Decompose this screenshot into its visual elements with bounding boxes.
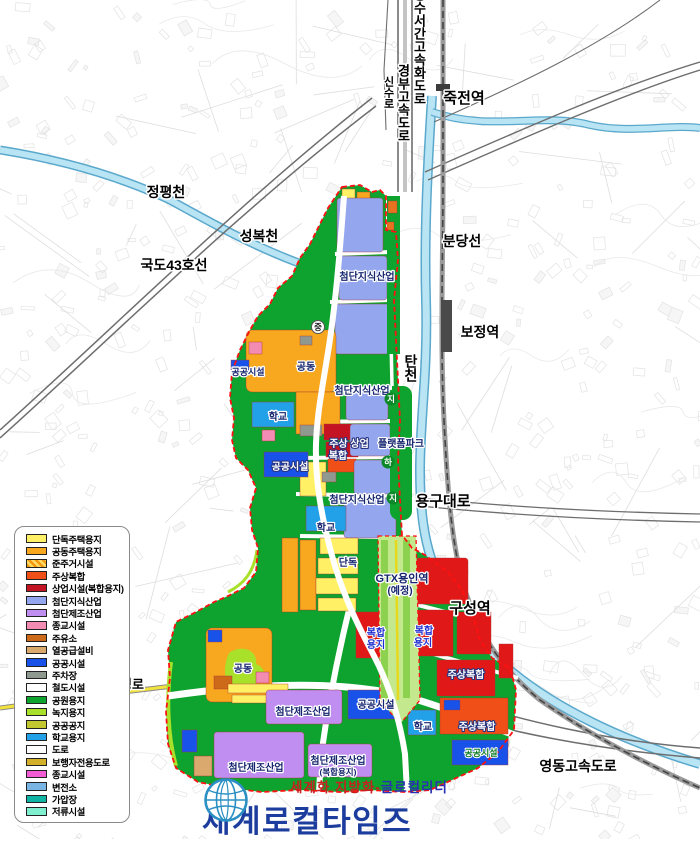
chip-public2: [182, 730, 197, 752]
legend-swatch: [26, 733, 47, 742]
legend-swatch: [26, 634, 47, 643]
road-label-suseo: 용수서간고속화도로: [412, 0, 427, 105]
parcel-apartment3: [282, 538, 298, 612]
parcel-apartment4: [300, 540, 316, 610]
legend-swatch: [26, 646, 47, 655]
circle-label-ji1: 지: [387, 394, 395, 404]
platform-city-map: 용수서간고속화도로 경부고속도로 신수로 탄천 죽전역 정평천 성복천 국도43…: [0, 0, 700, 839]
corridor-strip2: [403, 540, 410, 698]
tagline-red-part: 세계화 지방화-: [290, 780, 381, 795]
legend-row: 첨단제조산업: [26, 607, 125, 618]
chip-parking1: [300, 336, 312, 345]
legend-row: 학교용지: [26, 732, 125, 743]
zone-label-public2: 공공시설: [272, 460, 309, 473]
legend-swatch: [26, 609, 47, 618]
circle-label-ha: 하: [384, 457, 392, 467]
legend-swatch: [26, 782, 47, 791]
chip-public3: [444, 700, 460, 710]
legend-swatch: [26, 584, 47, 593]
circle-label-jung: 중: [314, 322, 322, 332]
zone-label-jejo1: 첨단제조산업: [275, 705, 330, 718]
parcel-knowledge3: [335, 304, 389, 354]
chip-public: [208, 630, 222, 642]
zone-label-public4: 공공시설: [464, 747, 497, 758]
road-label-yonggu: 용구대로: [415, 493, 470, 510]
legend-row: 도로: [26, 744, 125, 755]
legend-swatch: [26, 770, 47, 779]
sinsu-road: [384, 0, 388, 130]
legend-swatch: [26, 807, 47, 816]
zone-label-gongdong1: 공동: [297, 361, 315, 373]
zone-label-jisik3: 첨단지식산업: [329, 493, 384, 506]
legend-swatch: [26, 671, 47, 680]
zone-label-school3: 학교: [414, 720, 432, 733]
legend-swatch: [26, 683, 47, 692]
chip-heat-supply: [194, 756, 212, 776]
legend-row: 종교시설: [26, 620, 125, 631]
legend-row: 주유소: [26, 632, 125, 643]
zone-label-public1: 공공시설: [231, 366, 264, 377]
legend-swatch: [26, 571, 47, 580]
legend-row: 종교시설: [26, 769, 125, 780]
zone-label-jisik2: 첨단지식산업: [334, 384, 389, 397]
road-label-gukdo43: 국도43호선: [140, 257, 207, 273]
legend-row: 첨단지식산업: [26, 595, 125, 606]
logo-tagline: 세계화 지방화-글로컬리더: [290, 776, 448, 796]
river-label-tancheon: 탄천: [403, 353, 419, 383]
zone-label-school2: 학교: [317, 521, 335, 534]
zone-label-public3: 공공시설: [358, 698, 395, 711]
bojeong-station-mark: [441, 300, 452, 352]
legend-swatch: [26, 795, 47, 804]
legend-swatch: [26, 534, 47, 543]
chip-religion2: [262, 430, 275, 441]
legend-row: 상업시설(복합용지): [26, 583, 125, 594]
legend-swatch: [26, 745, 47, 754]
legend-row: 보행자전용도로: [26, 756, 125, 767]
station-label-guseong: 구성역: [449, 599, 490, 617]
globe-icon: [202, 776, 250, 824]
legend-swatch: [26, 708, 47, 717]
station-label-bojeong: 보정역: [461, 324, 500, 340]
chip-religion1: [249, 342, 262, 354]
zone-label-school1: 학교: [269, 410, 287, 423]
zone-label-gongdong2: 공동: [234, 663, 252, 675]
legend-row: 열공급설비: [26, 645, 125, 656]
road-label-gyeongbu: 경부고속도로: [396, 63, 411, 142]
legend-swatch: [26, 758, 47, 767]
chip-parking3: [322, 472, 336, 482]
chip-orange2: [387, 222, 394, 230]
zone-label-bokhap-b1: 복합: [415, 624, 434, 637]
legend: 단독주택용지 공동주택용지 준주거시설 주상복합 상업시설(복합용지) 첨단지식…: [14, 526, 130, 823]
river-label-seongbok: 성복천: [240, 228, 279, 244]
legend-row: 저류시설: [26, 806, 125, 817]
legend-swatch: [26, 559, 47, 568]
legend-row: 가압장: [26, 794, 125, 805]
zone-label-jisik1: 첨단지식산업: [339, 270, 394, 283]
legend-swatch: [26, 658, 47, 667]
legend-row: 공원용지: [26, 694, 125, 705]
road-label-yeongdong: 영동고속도로: [539, 758, 616, 774]
zone-label-jejo2: 첨단제조산업: [228, 761, 283, 774]
legend-row: 공동주택용지: [26, 545, 125, 556]
legend-swatch: [26, 696, 47, 705]
zone-label-bokhap-a2: 용지: [367, 638, 385, 651]
zone-label-gtx: GTX용인역: [376, 571, 429, 585]
legend-row: 공공공지: [26, 719, 125, 730]
zone-label-jusang2: 주상복합: [459, 720, 497, 733]
road-label-sinsu: 신수로: [382, 75, 394, 109]
chip-religion3: [256, 672, 269, 683]
zone-label-jusang1: 주상복합: [448, 668, 486, 681]
legend-swatch: [26, 547, 47, 556]
zone-label-dandok: 단독: [339, 556, 357, 569]
circle-label-ji2: 지: [389, 493, 397, 503]
rail-label-bundang: 분당선: [443, 233, 482, 249]
legend-row: 준주거시설: [26, 558, 125, 569]
river-label-jeongpyeong: 정평천: [147, 184, 186, 200]
legend-row: 단독주택용지: [26, 533, 125, 544]
tagline-blue-part: 글로컬리더: [381, 780, 448, 795]
zone-label-bokhap-a1: 복합: [367, 626, 386, 639]
newspaper-logo: 세계화 지방화-글로컬리더 세계로컬타임즈: [202, 776, 448, 841]
zone-label-bokhap-b2: 용지: [414, 636, 432, 649]
legend-row: 변전소: [26, 781, 125, 792]
legend-swatch: [26, 596, 47, 605]
zone-label-gtx-planned: (예정): [387, 584, 412, 597]
legend-label: 저류시설: [52, 804, 85, 818]
legend-swatch: [26, 720, 47, 729]
legend-row: 주차장: [26, 669, 125, 680]
legend-row: 철도시설: [26, 682, 125, 693]
logo-row: 세계로컬타임즈: [202, 796, 448, 841]
legend-row: 주상복합: [26, 570, 125, 581]
chip-orange1: [388, 201, 397, 213]
parcel-red2: [457, 612, 491, 654]
zone-label-platform-park: 플랫폼파크: [378, 437, 424, 450]
zone-label-bokhap: 복합: [329, 449, 348, 462]
legend-row: 공공시설: [26, 657, 125, 668]
legend-row: 녹지용지: [26, 707, 125, 718]
station-label-jukjeon: 죽전역: [443, 90, 484, 107]
legend-swatch: [26, 621, 47, 630]
zone-label-jejo3: 첨단제조산업: [310, 754, 365, 767]
zone-label-jusang-sangeop: 주상 상업: [329, 437, 369, 450]
